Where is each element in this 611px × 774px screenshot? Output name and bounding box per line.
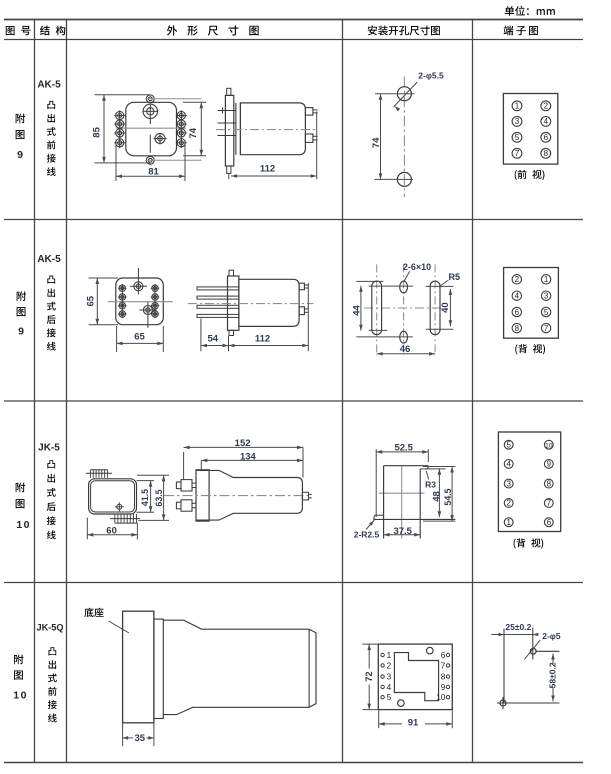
svg-text:63.5: 63.5 — [154, 489, 164, 506]
svg-text:6: 6 — [441, 651, 446, 660]
svg-text:9: 9 — [18, 326, 24, 338]
svg-text:48: 48 — [432, 491, 443, 502]
svg-text:112: 112 — [260, 164, 275, 175]
svg-text:9: 9 — [547, 460, 552, 469]
svg-text:7: 7 — [544, 324, 549, 333]
svg-text:2-φ5: 2-φ5 — [542, 631, 561, 641]
svg-text:8: 8 — [544, 149, 549, 158]
svg-text:4: 4 — [515, 292, 520, 301]
svg-text:3: 3 — [387, 673, 392, 682]
svg-text:74: 74 — [371, 137, 382, 148]
svg-text:152: 152 — [235, 438, 251, 449]
svg-text:4: 4 — [544, 117, 549, 126]
svg-text:91: 91 — [408, 717, 419, 728]
svg-text:8: 8 — [515, 324, 520, 333]
svg-text:10: 10 — [16, 519, 31, 531]
svg-text:72: 72 — [364, 671, 375, 682]
svg-text:10: 10 — [436, 693, 446, 702]
svg-text:AK-5: AK-5 — [37, 80, 61, 91]
svg-text:7: 7 — [441, 661, 446, 670]
svg-text:1: 1 — [506, 518, 511, 527]
svg-text:52.5: 52.5 — [394, 442, 413, 453]
svg-text:4: 4 — [387, 683, 392, 692]
svg-text:2-6×10: 2-6×10 — [403, 262, 431, 272]
svg-text:134: 134 — [240, 452, 257, 463]
svg-text:85: 85 — [92, 126, 103, 137]
svg-text:2: 2 — [387, 661, 392, 670]
svg-text:7: 7 — [547, 499, 552, 508]
svg-text:2: 2 — [506, 499, 511, 508]
svg-text:8: 8 — [441, 673, 446, 682]
svg-text:41.5: 41.5 — [140, 489, 150, 506]
svg-text:R5: R5 — [449, 272, 461, 282]
svg-text:44: 44 — [351, 305, 362, 316]
svg-text:6: 6 — [547, 518, 552, 527]
svg-text:9: 9 — [17, 149, 23, 161]
svg-text:2-R2.5: 2-R2.5 — [354, 530, 380, 540]
svg-text:5: 5 — [544, 308, 549, 317]
svg-text:3: 3 — [515, 117, 520, 126]
svg-text:65: 65 — [86, 295, 97, 306]
svg-text:81: 81 — [148, 167, 159, 178]
svg-text:40: 40 — [440, 302, 451, 313]
svg-text:5: 5 — [387, 693, 392, 702]
svg-text:JK-5: JK-5 — [38, 443, 60, 454]
svg-text:58±0.2: 58±0.2 — [548, 662, 558, 688]
svg-text:9: 9 — [441, 683, 446, 692]
svg-text:37.5: 37.5 — [393, 526, 412, 537]
svg-text:7: 7 — [515, 149, 520, 158]
svg-text:3: 3 — [506, 479, 511, 488]
svg-text:3: 3 — [544, 292, 549, 301]
svg-text:6: 6 — [544, 133, 549, 142]
svg-text:54: 54 — [208, 334, 219, 345]
svg-text:5: 5 — [515, 133, 520, 142]
svg-text:60: 60 — [106, 525, 117, 536]
svg-text:5: 5 — [506, 440, 511, 449]
svg-text:35: 35 — [135, 733, 146, 744]
svg-text:4: 4 — [506, 460, 511, 469]
svg-text:8: 8 — [547, 479, 552, 488]
svg-text:R3: R3 — [425, 480, 436, 490]
svg-text:25±0.2: 25±0.2 — [505, 622, 531, 632]
svg-text:6: 6 — [515, 308, 520, 317]
svg-text:112: 112 — [255, 334, 270, 345]
svg-text:AK-5: AK-5 — [37, 254, 61, 265]
svg-text:1: 1 — [515, 102, 520, 111]
svg-text:2: 2 — [544, 102, 549, 111]
svg-text:2-φ5.5: 2-φ5.5 — [418, 71, 444, 81]
svg-text:2: 2 — [515, 275, 520, 284]
svg-text:1: 1 — [387, 651, 392, 660]
svg-text:54.5: 54.5 — [443, 488, 453, 505]
svg-text:74: 74 — [188, 127, 199, 138]
svg-text:46: 46 — [400, 344, 411, 355]
svg-text:10: 10 — [545, 442, 553, 449]
svg-text:JK-5Q: JK-5Q — [36, 623, 63, 633]
svg-text:65: 65 — [134, 332, 145, 343]
svg-text:1: 1 — [544, 275, 549, 284]
svg-text:10: 10 — [13, 690, 28, 702]
